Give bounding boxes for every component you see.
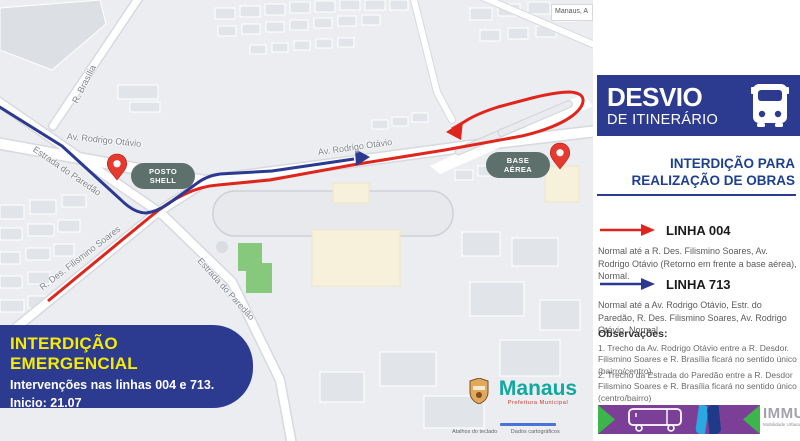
banner-wave-dark: [706, 405, 721, 434]
line-713-row: LINHA 713: [598, 276, 796, 292]
manaus-logo: Manaus Prefeitura Municipal: [468, 378, 593, 406]
red-arrow-icon: [598, 222, 656, 238]
map-pin-icon: [549, 142, 571, 170]
panel-title: DESVIO: [607, 84, 750, 110]
map-data-link[interactable]: Dados cartográficos: [511, 429, 560, 435]
poi-base-line2: AÉREA: [486, 165, 550, 174]
observation-item-2: 2. Trecho da Estrada do Paredão entre a …: [598, 370, 797, 404]
poi-posto-shell: POSTO SHELL: [131, 163, 195, 189]
emergency-notice-line1: Intervenções nas linhas 004 e 713.: [10, 378, 243, 392]
immu-logo-subtitle: Mobilidade Urbana: [763, 422, 799, 427]
section-divider: [597, 194, 796, 196]
map-pin-icon: [106, 153, 128, 181]
map[interactable]: R. Brasília Av. Rodrigo Otávio Estrada d…: [0, 0, 593, 441]
info-panel: DESVIO DE ITINERÁRIO INTERDIÇÃO PARA REA…: [593, 0, 800, 441]
banner-left-triangle: [598, 405, 615, 434]
immu-banner: [598, 405, 760, 434]
manaus-crest-icon: [468, 378, 490, 404]
map-attribution-link[interactable]: [500, 423, 556, 426]
panel-header: DESVIO DE ITINERÁRIO: [597, 75, 800, 136]
panel-subtitle: DE ITINERÁRIO: [607, 112, 750, 128]
emergency-notice-box: INTERDIÇÃO EMERGENCIAL Intervenções nas …: [0, 325, 253, 408]
section-title-line1: INTERDIÇÃO PARA: [597, 156, 795, 173]
blue-arrow-icon: [598, 276, 656, 292]
detour-notice-poster: R. Brasília Av. Rodrigo Otávio Estrada d…: [0, 0, 800, 441]
section-title: INTERDIÇÃO PARA REALIZAÇÃO DE OBRAS: [597, 156, 795, 190]
bus-front-icon: [750, 83, 790, 129]
route-004-arrowhead: [446, 121, 463, 140]
banner-right-triangle: [743, 405, 760, 434]
bus-side-icon: [626, 407, 686, 434]
map-search-box[interactable]: Manaus, A: [551, 4, 593, 21]
map-attribution: Atalhos do teclado Dados cartográficos: [452, 429, 572, 435]
poi-base-aerea: BASE AÉREA: [486, 152, 550, 178]
line-004-row: LINHA 004: [598, 222, 796, 238]
emergency-notice-line2: Inicio: 21.07: [10, 396, 243, 410]
line-004-label: LINHA 004: [666, 223, 731, 238]
keyboard-shortcuts-link[interactable]: Atalhos do teclado: [452, 429, 497, 435]
park-green-area: [238, 243, 272, 293]
observations-title: Observações:: [598, 328, 667, 340]
section-title-line2: REALIZAÇÃO DE OBRAS: [597, 173, 795, 190]
poi-posto-line1: POSTO: [131, 167, 195, 176]
poi-base-line1: BASE: [486, 156, 550, 165]
immu-logo-text: IMMU: [763, 406, 799, 421]
line-713-label: LINHA 713: [666, 277, 731, 292]
poi-posto-line2: SHELL: [131, 176, 195, 185]
immu-logo: IMMU Mobilidade Urbana: [763, 406, 799, 427]
emergency-notice-title: INTERDIÇÃO EMERGENCIAL: [10, 334, 243, 374]
